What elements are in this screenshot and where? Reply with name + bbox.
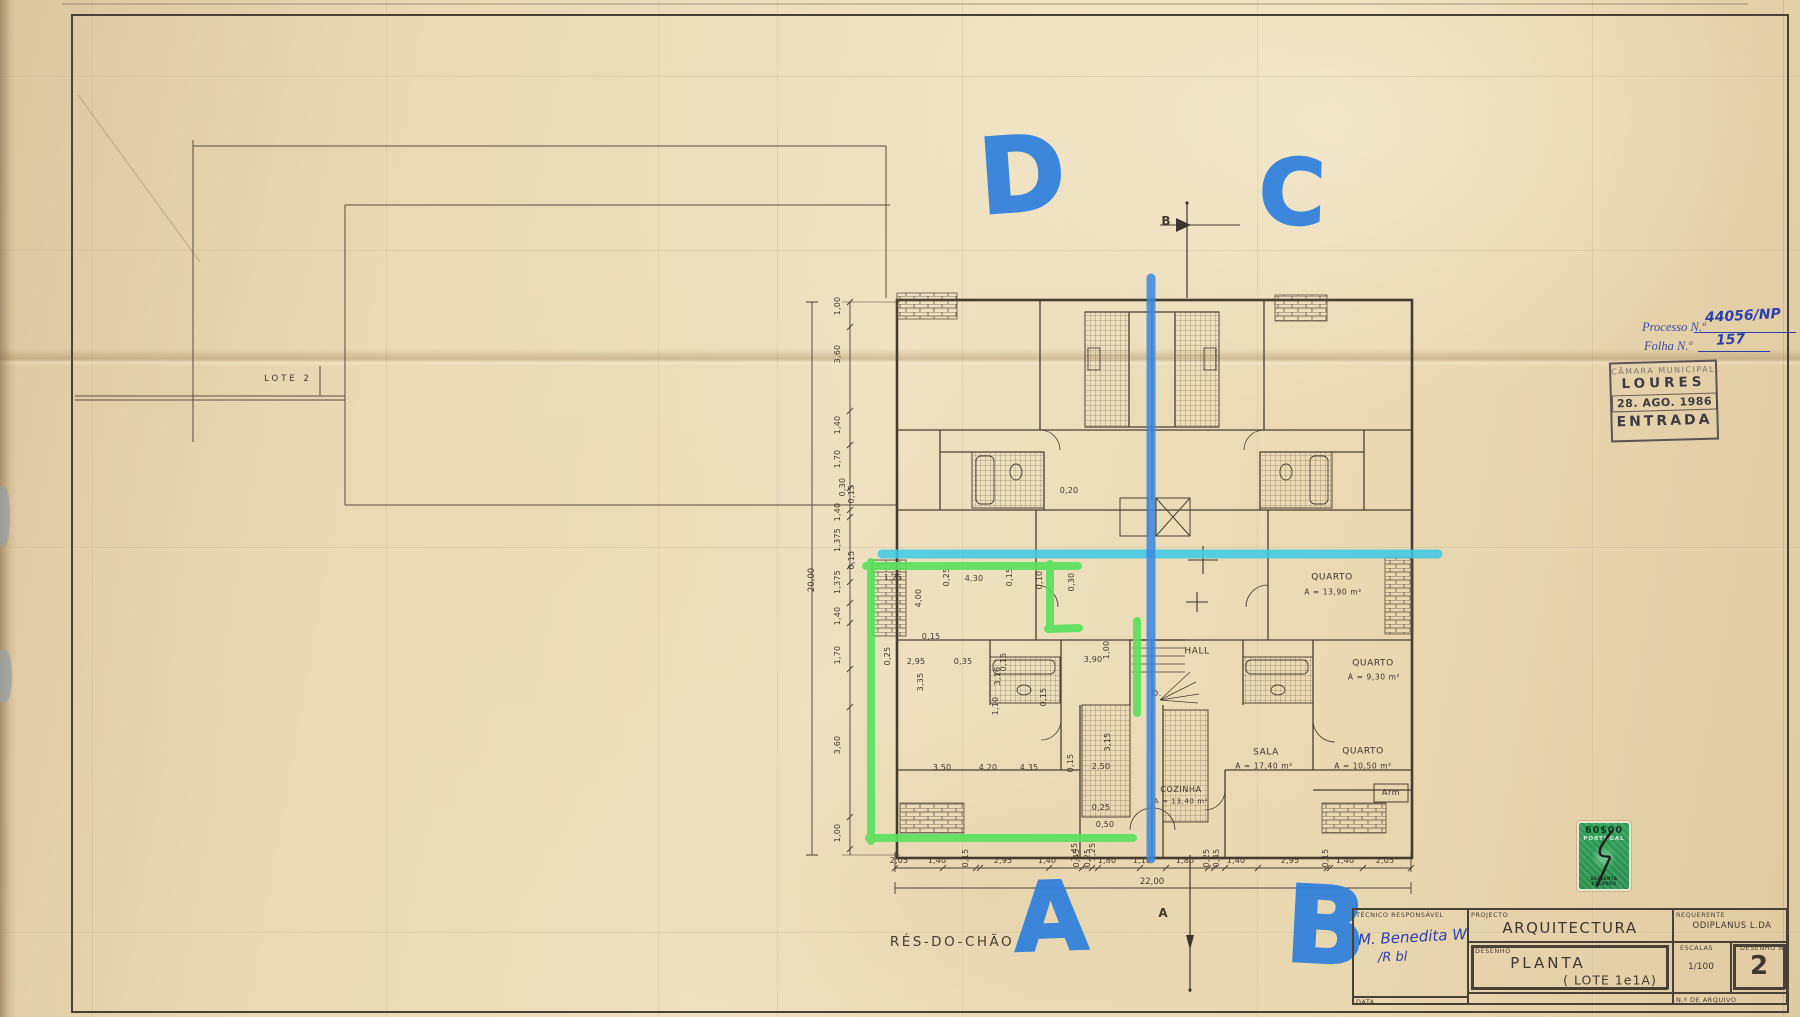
room-label: D. <box>1152 690 1162 698</box>
section-marker-bottom: A <box>1158 906 1167 920</box>
dim-label: 0,15 <box>962 849 970 868</box>
dim-label: 1,40 <box>1227 857 1246 865</box>
folha-label: Folha N.º <box>1644 339 1692 354</box>
dim-label: 2,95 <box>907 658 926 666</box>
dim-label: 1,70 <box>834 646 842 665</box>
marker-letter-C: C <box>1257 147 1326 239</box>
tecnico-label: TÉCNICO RESPONSÁVEL <box>1356 911 1444 919</box>
fiscal-country: PORTUGAL <box>1579 836 1629 842</box>
dim-label: 1,375 <box>834 528 842 552</box>
desenho-label: DESENHO <box>1475 947 1511 955</box>
dim-label: 1,00 <box>834 824 842 843</box>
dim-label: 0,15 <box>848 485 856 504</box>
dim-label: 1,45 <box>1071 843 1079 862</box>
room-label: A = 13,90 m² <box>1304 588 1362 596</box>
room-label: HALL <box>1184 648 1209 657</box>
dim-label: 0,20 <box>1060 487 1079 495</box>
dim-label: 2,05 <box>1376 857 1395 865</box>
requerente-value: ODIPLANUS L.DA <box>1693 921 1772 931</box>
escalas-value: 1/100 <box>1688 962 1714 972</box>
section-marker-top: B <box>1161 214 1170 228</box>
room-label: COZINHA <box>1160 786 1201 794</box>
dim-label: 3,60 <box>834 345 842 364</box>
arquivo-label: N.º DE ARQUIVO <box>1676 996 1736 1004</box>
desenho-value-lote: ( LOTE 1e1A) <box>1563 973 1657 988</box>
marker-letter-D: D <box>975 120 1068 230</box>
room-label: SALA <box>1253 749 1279 758</box>
dim-label: 1,00 <box>1103 641 1111 660</box>
dim-label: 2,50 <box>1092 763 1111 771</box>
dim-label: 0,15 <box>848 551 856 570</box>
municipal-entry-stamp: CÂMARA MUNICIPAL, LOURES 28. AGO. 1986 E… <box>1609 360 1719 443</box>
dim-label: 2,95 <box>994 857 1013 865</box>
dim-label: 1,70 <box>834 450 842 469</box>
dim-label: 0,10 <box>1036 571 1044 590</box>
projecto-label: PROJECTO <box>1471 911 1508 919</box>
dim-label: 1,25 <box>884 574 903 582</box>
dim-label: 1,40 <box>1336 857 1355 865</box>
processo-underline <box>1694 332 1796 333</box>
dim-label: 4,20 <box>979 764 998 772</box>
room-label: A = 10,50 m² <box>1334 762 1392 770</box>
dim-label: 1,80 <box>1176 857 1195 865</box>
folha-underline <box>1698 351 1770 352</box>
desenho-value: PLANTA <box>1510 954 1586 972</box>
floor-title: RÉS-DO-CHÃO <box>890 934 1014 950</box>
dim-label: 0,25 <box>884 647 892 666</box>
dim-label: 1,00 <box>834 297 842 316</box>
dim-label: 1,40 <box>928 857 947 865</box>
dim-label: 3,90 <box>1084 656 1103 664</box>
total-height-dim: 20,00 <box>807 568 817 592</box>
dim-label: 3,16 <box>994 667 1002 686</box>
dim-label: 1,375 <box>834 570 842 594</box>
dim-label: 3,50 <box>933 764 952 772</box>
dim-label: 2,05 <box>890 857 909 865</box>
dim-label: 1,40 <box>834 503 842 522</box>
room-label: QUARTO <box>1342 748 1384 757</box>
dim-label: 0,15 <box>1067 754 1075 773</box>
dim-label: 1,10 <box>992 697 1000 716</box>
fiscal-value: 60$00 <box>1579 823 1629 836</box>
dim-label: 3,60 <box>834 736 842 755</box>
folha-value-handwritten: 157 <box>1716 331 1746 349</box>
scanned-drawing-sheet: 2,051,400,152,951,400,450,251,801,101,80… <box>0 0 1800 1017</box>
dim-label: 0,15 <box>922 633 941 641</box>
marker-letter-B: B <box>1283 872 1369 982</box>
fiscal-denomination: SESSENTA ESCUDOS <box>1579 876 1629 886</box>
site-lot-label: LOTE 2 <box>264 374 312 384</box>
fiscal-stamp-body: 60$00 PORTUGAL SESSENTA ESCUDOS <box>1579 823 1629 889</box>
projecto-value: ARQUITECTURA <box>1502 919 1637 937</box>
stamp-line4: ENTRADA <box>1612 412 1716 431</box>
dim-label: 0,35 <box>954 658 973 666</box>
dim-label: 0,25 <box>943 568 951 587</box>
dim-label: 0,15 <box>1040 688 1048 707</box>
room-label: A = 13,40 m² <box>1154 799 1208 806</box>
escalas-label: ESCALAS <box>1680 944 1713 952</box>
dim-label: 0,45 <box>1213 849 1221 868</box>
dim-label: 3,15 <box>1104 733 1112 752</box>
total-width-dim: 22,00 <box>1140 877 1164 887</box>
signature-handwritten-2: /R bl <box>1378 949 1408 965</box>
fiscal-stamp: 60$00 PORTUGAL SESSENTA ESCUDOS <box>1577 821 1631 891</box>
dim-label: 0,30 <box>1068 573 1076 592</box>
room-label: QUARTO <box>1352 660 1394 669</box>
room-label: Arm <box>1382 789 1400 797</box>
dim-label: 1,25 <box>1089 843 1097 862</box>
dim-label: 4,35 <box>1020 764 1039 772</box>
stamp-date: 28. AGO. 1986 <box>1612 393 1718 413</box>
dim-label: 3,35 <box>917 673 925 692</box>
room-label: A = 9,30 m² <box>1348 673 1400 681</box>
dim-label: 0,25 <box>1092 804 1111 812</box>
dim-label: 4,30 <box>965 575 984 583</box>
dim-label: 0,15 <box>1006 568 1014 587</box>
data-label: DATA <box>1356 998 1375 1006</box>
dim-label: 1,40 <box>834 416 842 435</box>
room-label: A = 17,40 m² <box>1235 762 1293 770</box>
dim-label: 4,00 <box>915 589 923 608</box>
desenho-n-value: 2 <box>1750 951 1768 981</box>
dim-label: 1,10 <box>1133 857 1152 865</box>
stamp-line2: LOURES <box>1611 374 1715 393</box>
dim-label: 0,50 <box>1096 821 1115 829</box>
requerente-label: REQUERENTE <box>1676 911 1725 919</box>
marker-letter-A: A <box>1013 869 1090 967</box>
dim-label: 0,30 <box>839 478 847 497</box>
dim-label: 0,25 <box>1203 849 1211 868</box>
room-label: QUARTO <box>1311 574 1353 583</box>
dim-label: 1,80 <box>1098 857 1117 865</box>
dim-label: 1,40 <box>834 607 842 626</box>
